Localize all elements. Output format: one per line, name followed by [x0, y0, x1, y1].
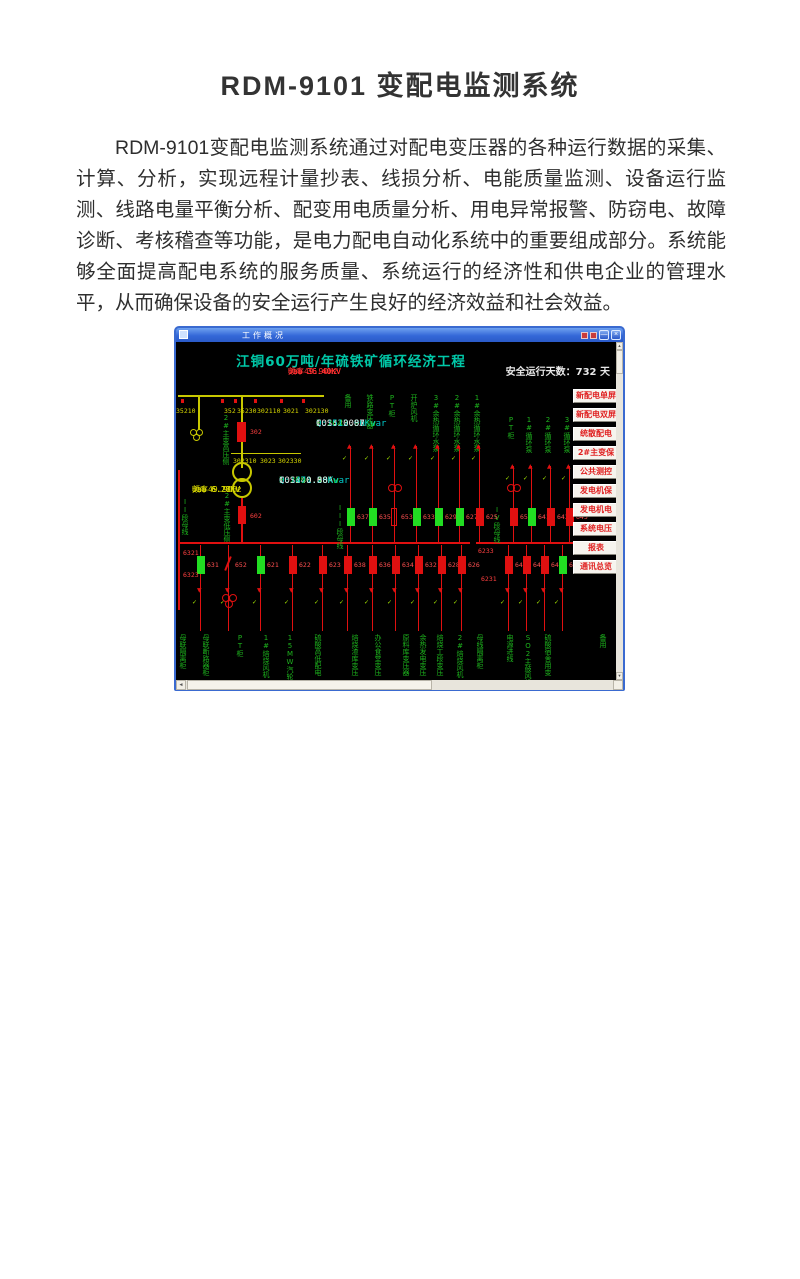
breaker-number: 653 — [401, 513, 413, 521]
status-check-icon: ✓ — [505, 476, 510, 482]
status-check-icon: ✓ — [518, 600, 523, 606]
breaker-box[interactable] — [510, 508, 518, 526]
titlebar-red-button-1[interactable] — [581, 332, 588, 339]
tap-label: 6323 — [183, 571, 199, 579]
tap-label: 6233 — [478, 547, 494, 555]
scada-diagram: 江铜60万吨/年硫铁矿循环经济工程 安全运行天数：732 天 Uab 36.40… — [176, 342, 616, 680]
breaker-number: 631 — [207, 561, 219, 569]
feeder-label: PT柜 — [388, 394, 396, 417]
breaker-box[interactable] — [369, 556, 377, 574]
menu-button[interactable]: 2#主变保 — [573, 446, 616, 460]
breaker-302-label: 302 — [250, 428, 262, 436]
breaker-box[interactable] — [344, 556, 352, 574]
feeder-arrow-icon: ▼ — [523, 588, 528, 594]
equipment-label: 15MW汽轮发电 — [286, 634, 294, 680]
hv-lower-line — [231, 453, 301, 454]
feeder-line — [479, 446, 480, 543]
page-title: RDM-9101 变配电监测系统 — [0, 64, 800, 103]
equipment-label: SO2主鼓风机 — [524, 634, 532, 680]
breaker-box[interactable] — [523, 556, 531, 574]
hv-reading: 频率49.90Hz — [288, 366, 338, 377]
bus2-label: II段母线 — [181, 498, 189, 535]
scroll-up-icon[interactable]: ▲ — [616, 342, 623, 350]
tap-label: 6321 — [183, 549, 199, 557]
breaker-number: 632 — [425, 561, 437, 569]
feeder-arrow-icon: ▲ — [566, 464, 571, 470]
feeder-line — [459, 446, 460, 543]
feeder-line — [350, 446, 351, 543]
breaker-box[interactable] — [456, 508, 464, 526]
project-title: 江铜60万吨/年硫铁矿循环经济工程 — [211, 350, 491, 370]
app-icon — [179, 330, 188, 339]
switch-label: 35230 — [237, 407, 257, 415]
menu-button[interactable]: 系统电压 — [573, 522, 616, 536]
breaker-box[interactable] — [476, 508, 484, 526]
switch-label: 3021 — [283, 407, 299, 415]
status-check-icon: ✓ — [554, 600, 559, 606]
status-check-icon: ✓ — [342, 456, 347, 462]
status-check-icon: ✓ — [410, 600, 415, 606]
feeder-arrow-icon: ▼ — [257, 588, 262, 594]
breaker-box[interactable] — [559, 556, 567, 574]
feeder-arrow-icon: ▼ — [344, 588, 349, 594]
equipment-label: 母联隔离柜 — [179, 634, 187, 669]
minimize-button[interactable]: — — [599, 330, 609, 340]
pt-transformer-icon — [394, 484, 402, 492]
status-check-icon: ✓ — [408, 456, 413, 462]
menu-button[interactable]: 新配电双屏 — [573, 408, 616, 422]
feeder-arrow-icon: ▲ — [456, 444, 461, 450]
horizontal-scrollbar[interactable]: ◄ — [176, 680, 623, 690]
equipment-label: 焙烧工段变压 — [436, 634, 444, 676]
resize-gripper[interactable] — [613, 680, 623, 690]
breaker-box[interactable] — [392, 556, 400, 574]
titlebar-red-button-2[interactable] — [590, 332, 597, 339]
feeder-arrow-icon: ▲ — [528, 464, 533, 470]
switch-label: 35210 — [176, 407, 196, 415]
status-check-icon: ✓ — [433, 600, 438, 606]
safe-running-days: 安全运行天数：732 天 — [476, 363, 610, 378]
vertical-scrollbar[interactable]: ▲ ▼ — [616, 342, 623, 680]
status-check-icon: ✓ — [536, 600, 541, 606]
tap-label: 6231 — [481, 575, 497, 583]
breaker-box[interactable] — [369, 508, 377, 526]
breaker-602-box[interactable] — [238, 506, 246, 524]
breaker-box[interactable] — [435, 508, 443, 526]
feeder-arrow-icon: ▼ — [415, 588, 420, 594]
breaker-number: 626 — [468, 561, 480, 569]
feeder-label: 备用 — [344, 394, 352, 408]
window-title: 工作概况 — [242, 330, 286, 341]
breaker-number: 633 — [423, 513, 435, 521]
breaker-box[interactable] — [413, 508, 421, 526]
status-check-icon: ✓ — [339, 600, 344, 606]
window-controls: — × — [581, 330, 621, 340]
breaker-number: 637 — [357, 513, 369, 521]
breaker-box[interactable] — [257, 556, 265, 574]
status-check-icon: ✓ — [364, 456, 369, 462]
feeder-label: 开炉风机 — [410, 394, 418, 422]
switch-label: 302130 — [305, 407, 328, 415]
breaker-602-label: 602 — [250, 512, 262, 520]
feeder-arrow-icon: ▲ — [391, 444, 396, 450]
feeder-arrow-icon: ▲ — [413, 444, 418, 450]
status-check-icon: ✓ — [451, 456, 456, 462]
feeder-line — [550, 466, 551, 543]
status-check-icon: ✓ — [387, 600, 392, 606]
breaker-box[interactable] — [347, 508, 355, 526]
bus3-label: III段母线 — [336, 504, 344, 549]
breaker-number: 625 — [486, 513, 498, 521]
breaker-box[interactable] — [541, 556, 549, 574]
feeder-arrow-icon: ▼ — [392, 588, 397, 594]
breaker-number: 635 — [379, 513, 391, 521]
feeder-arrow-icon: ▲ — [369, 444, 374, 450]
feeder-line — [394, 446, 395, 543]
switch-state-icon — [221, 399, 224, 403]
equipment-label: 备用 — [599, 634, 607, 648]
lv-reading: 频率49.90Hz — [192, 484, 242, 495]
feeder-line — [513, 466, 514, 543]
status-check-icon: ✓ — [314, 600, 319, 606]
breaker-box[interactable] — [505, 556, 513, 574]
breaker-number: 638 — [354, 561, 366, 569]
document-page: RDM-9101 变配电监测系统 RDM-9101变配电监测系统通过对配电变压器… — [0, 0, 800, 1279]
menu-button[interactable]: 统散配电 — [573, 427, 616, 441]
switch-state-icon — [181, 399, 184, 403]
feeder-arrow-icon: ▲ — [510, 464, 515, 470]
feeder-line — [372, 446, 373, 543]
main-bus-line — [178, 542, 470, 544]
equipment-label: 2#焙烧风机 — [456, 634, 464, 678]
breaker-number: 652 — [235, 561, 247, 569]
transformer-hv-label: 2#主变高压侧 — [222, 414, 230, 465]
status-check-icon: ✓ — [471, 456, 476, 462]
equipment-label: 硫酸高低配电 — [314, 634, 322, 676]
status-check-icon: ✓ — [500, 600, 505, 606]
feeder-arrow-icon: ▲ — [347, 444, 352, 450]
status-check-icon: ✓ — [561, 476, 566, 482]
cos-reading: COS: 0.87 — [316, 419, 365, 430]
equipment-label: 母线隔离柜 — [476, 634, 484, 669]
switch-state-icon — [302, 399, 305, 403]
feeder-label: PT柜 — [507, 416, 515, 439]
scroll-down-icon[interactable]: ▼ — [616, 672, 623, 680]
equipment-label: 办公食堂变压 — [374, 634, 382, 676]
breaker-box[interactable] — [438, 556, 446, 574]
window-body: 江铜60万吨/年硫铁矿循环经济工程 安全运行天数：732 天 Uab 36.40… — [176, 342, 623, 680]
horizontal-scroll-thumb[interactable] — [187, 680, 432, 690]
app-window: 工作概况 — × 江铜60万吨/年硫铁矿循环经济工程 安全运行天数：732 天 … — [174, 326, 625, 691]
menu-button[interactable]: 报表 — [573, 541, 616, 555]
cos-reading: COS: 0.88 — [279, 476, 328, 487]
pt-winding-icon — [193, 434, 200, 441]
breaker-box[interactable] — [319, 556, 327, 574]
breaker-302-box[interactable] — [237, 422, 246, 442]
equipment-label: 硫酸宿舍用变 — [544, 634, 552, 676]
breaker-number: 623 — [329, 561, 341, 569]
feeder-arrow-icon: ▼ — [458, 588, 463, 594]
status-check-icon: ✓ — [430, 456, 435, 462]
breaker-number: 636 — [379, 561, 391, 569]
equipment-label: 余热发电变压 — [419, 634, 427, 676]
equipment-label: PT柜 — [236, 634, 244, 657]
feeder-arrow-icon: ▼ — [289, 588, 294, 594]
breaker-box[interactable] — [415, 556, 423, 574]
status-check-icon: ✓ — [192, 600, 197, 606]
left-edge-bus-line — [178, 470, 180, 610]
bus4-label: IV段母线 — [493, 506, 501, 543]
switch-state-icon — [254, 399, 257, 403]
equipment-label: 原料库变压器 — [402, 634, 410, 676]
scroll-left-icon[interactable]: ◄ — [176, 680, 186, 690]
switch-label: 302110 — [257, 407, 280, 415]
switch-label: 302330 — [278, 457, 301, 465]
close-button[interactable]: × — [611, 330, 621, 340]
equipment-label: 母联断路器柜 — [202, 634, 210, 676]
breaker-number: 634 — [402, 561, 414, 569]
breaker-box[interactable] — [289, 556, 297, 574]
feeder-arrow-icon: ▼ — [369, 588, 374, 594]
equipment-label: 焙烧渣库变压 — [351, 634, 359, 676]
equipment-label: 电源进线 — [506, 634, 514, 662]
feeder-arrow-icon: ▼ — [197, 588, 202, 594]
breaker-box[interactable] — [391, 508, 397, 526]
feeder-arrow-icon: ▼ — [319, 588, 324, 594]
status-check-icon: ✓ — [252, 600, 257, 606]
menu-button[interactable]: 新配电单屏 — [573, 389, 616, 403]
breaker-number: 621 — [267, 561, 279, 569]
breaker-box[interactable] — [547, 508, 555, 526]
feeder-arrow-icon: ▲ — [435, 444, 440, 450]
breaker-box[interactable] — [458, 556, 466, 574]
breaker-number: 629 — [445, 513, 457, 521]
switch-label: 3023 — [260, 457, 276, 465]
switch-state-icon — [234, 399, 237, 403]
feeder-line — [416, 446, 417, 543]
breaker-number: 622 — [299, 561, 311, 569]
feeder-line — [438, 446, 439, 543]
vertical-scroll-thumb[interactable] — [616, 350, 623, 374]
feeder-label: 铁路变压器 — [366, 394, 374, 429]
transformer-lv-label: 2#主变低压侧 — [223, 492, 231, 543]
status-check-icon: ✓ — [453, 600, 458, 606]
hv-branch-line — [198, 396, 200, 430]
feeder-arrow-icon: ▲ — [476, 444, 481, 450]
window-titlebar[interactable]: 工作概况 — × — [176, 328, 623, 342]
menu-button[interactable]: 公共测控 — [573, 465, 616, 479]
pt-transformer-icon — [513, 484, 521, 492]
feeder-line — [569, 466, 570, 543]
feeder-label: 3#循环泵 — [563, 416, 571, 453]
feeder-line — [531, 466, 532, 543]
transformer-icon — [225, 600, 233, 608]
status-check-icon: ✓ — [364, 600, 369, 606]
intro-paragraph: RDM-9101变配电监测系统通过对配电变压器的各种运行数据的采集、计算、分析，… — [76, 133, 726, 319]
feeder-arrow-icon: ▼ — [559, 588, 564, 594]
status-check-icon: ✓ — [542, 476, 547, 482]
menu-button[interactable]: 通讯总览 — [573, 560, 616, 574]
feeder-label: 2#循环泵 — [544, 416, 552, 453]
menu-button[interactable]: 发电机电 — [573, 503, 616, 517]
status-check-icon: ✓ — [284, 600, 289, 606]
feeder-label: 1#循环泵 — [525, 416, 533, 453]
feeder-arrow-icon: ▼ — [505, 588, 510, 594]
feeder-arrow-icon: ▲ — [547, 464, 552, 470]
feeder-arrow-icon: ▼ — [541, 588, 546, 594]
status-check-icon: ✓ — [523, 476, 528, 482]
switch-state-icon — [280, 399, 283, 403]
breaker-box[interactable] — [528, 508, 536, 526]
equipment-label: 1#焙烧风机 — [262, 634, 270, 678]
status-check-icon: ✓ — [386, 456, 391, 462]
menu-button[interactable]: 发电机保 — [573, 484, 616, 498]
feeder-arrow-icon: ▼ — [438, 588, 443, 594]
